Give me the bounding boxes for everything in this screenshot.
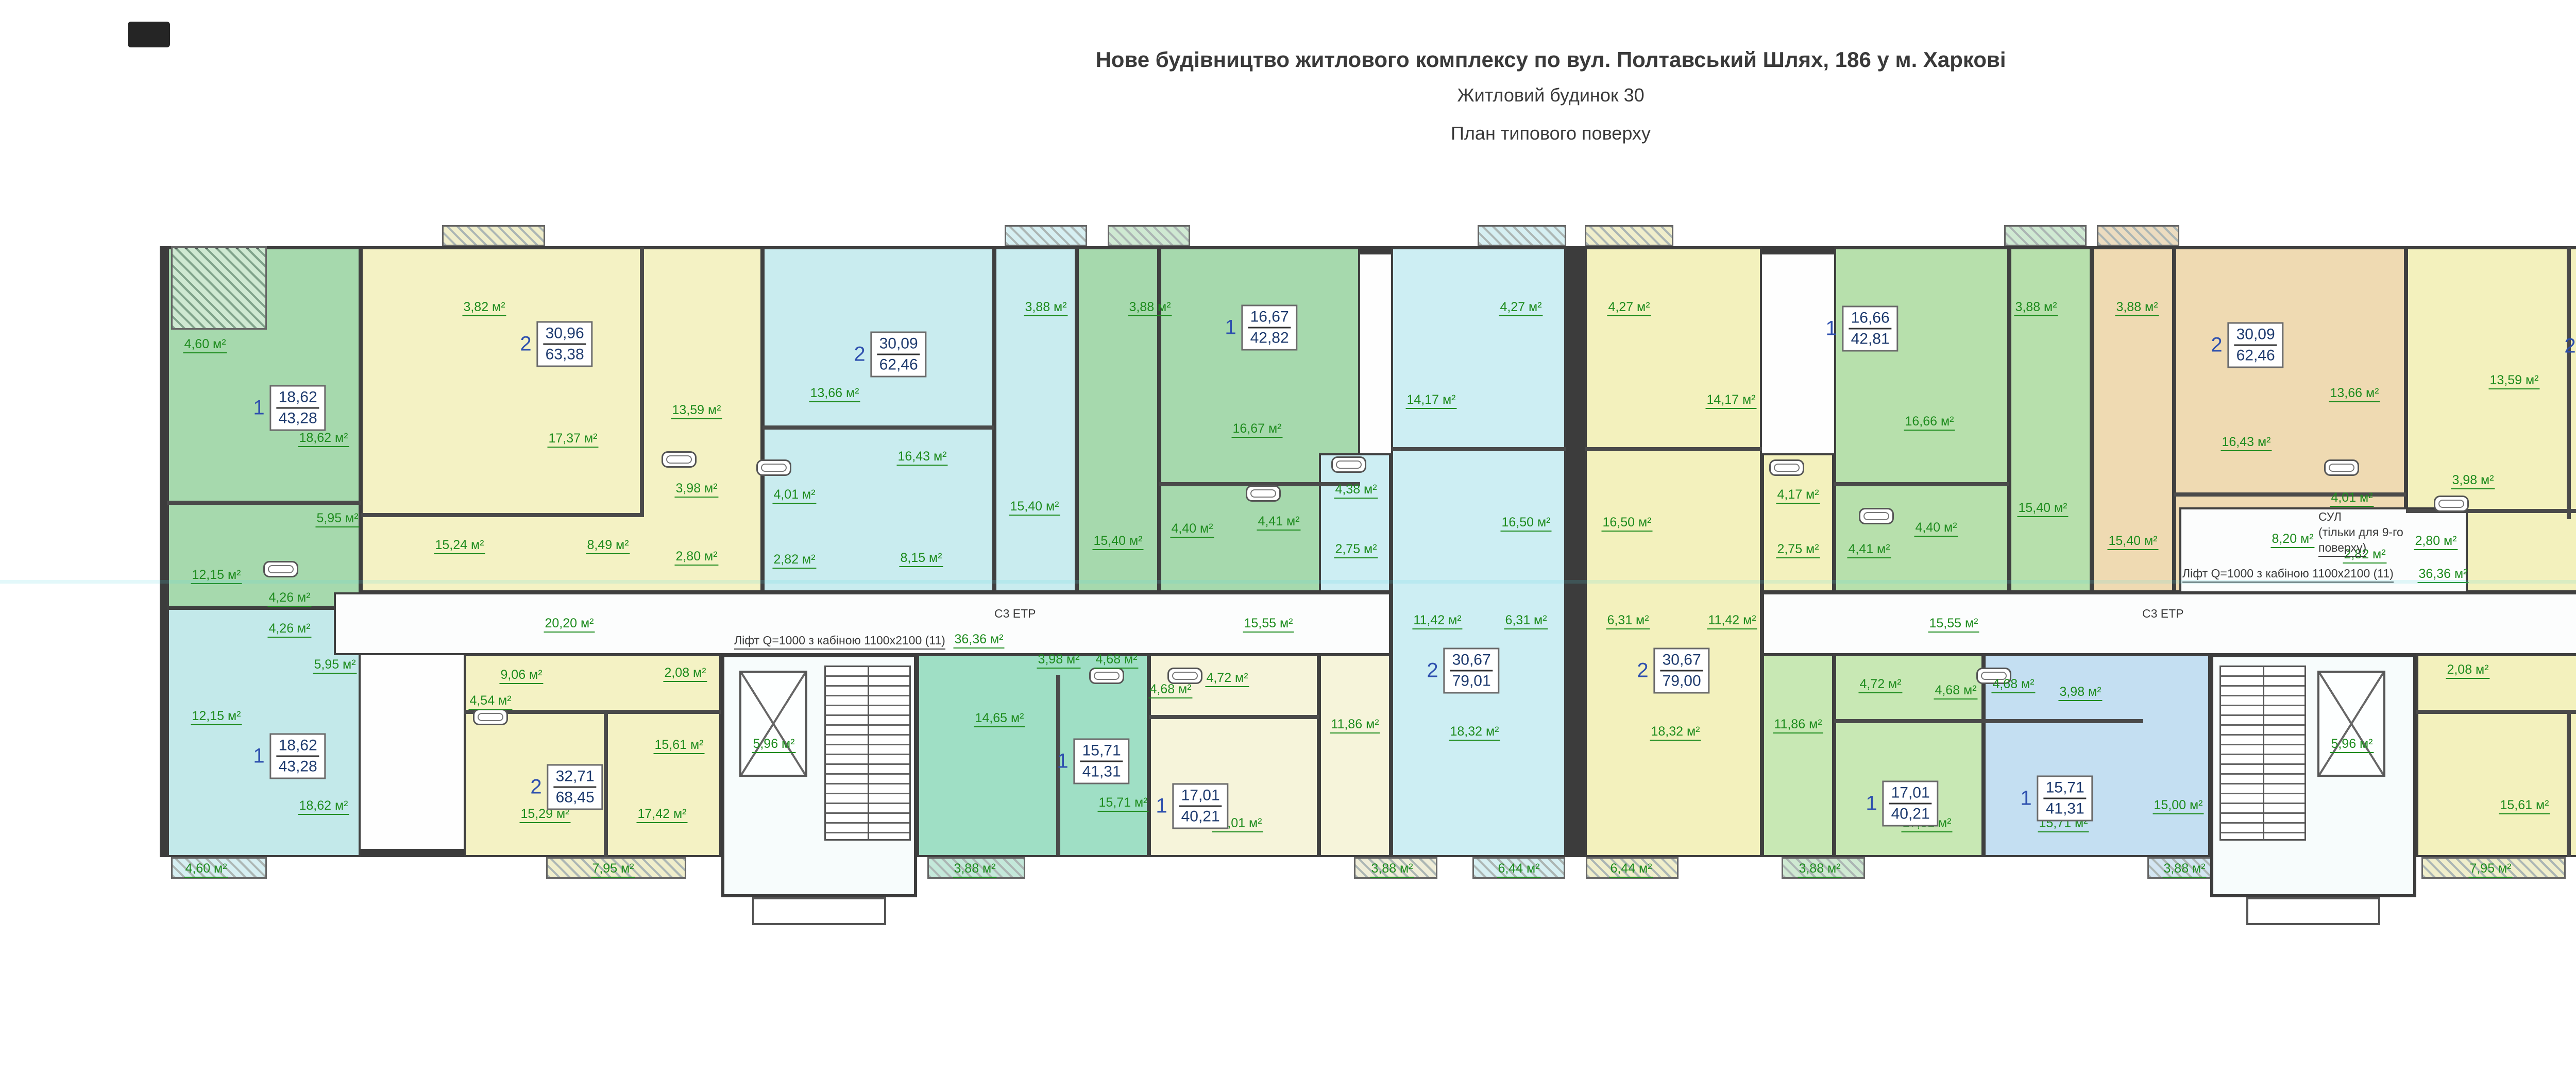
- apartment-R1: [1585, 247, 1762, 857]
- room-area-label-R7: 11,86 м²: [1773, 717, 1823, 733]
- room-area-label-R3: 8,20 м²: [2270, 532, 2314, 548]
- room-area-label-L3: 8,49 м²: [586, 538, 630, 554]
- balcony-area-label: 3,88 м²: [2162, 861, 2206, 878]
- apartment-rooms-count: 1: [253, 745, 264, 768]
- apartment-rooms-count: 1: [253, 397, 264, 420]
- room-area-label-L5: 16,43 м²: [896, 449, 947, 466]
- apartment-total-area: 79,01: [1450, 672, 1493, 690]
- inner-wall-10: [2406, 509, 2576, 513]
- scan-artifact-line: [0, 580, 2576, 584]
- balcony-hatch-3: [1108, 225, 1190, 246]
- balcony-area-label: 4,60 м²: [184, 861, 228, 878]
- bathtub-icon-6: [1859, 508, 1894, 524]
- apartment-areas-box: 18,6243,28: [270, 385, 326, 431]
- room-area-label-L1: 5,95 м²: [315, 511, 359, 527]
- inner-wall-22: [1834, 719, 1984, 723]
- apartment-L7-part1: [1319, 453, 1391, 592]
- room-area-label-T1: 15,71 м²: [1097, 795, 1148, 812]
- apartment-areas-box: 17,0140,21: [1883, 781, 1939, 827]
- room-area-label-R2: 16,66 м²: [1904, 414, 1955, 431]
- apartment-label-B1: 115,7141,31: [2020, 776, 2093, 822]
- annotation-text-5: (тільки для 9-го: [2318, 525, 2403, 539]
- bathtub-icon-1: [662, 451, 697, 468]
- corridor-area-label: 15,55 м²: [1928, 616, 1979, 633]
- room-area-label-R1: 16,50 м²: [1601, 515, 1652, 532]
- apartment-living-area: 30,09: [877, 335, 920, 355]
- apartment-total-area: 42,82: [1248, 329, 1291, 347]
- staircase-icon-0: [824, 666, 911, 841]
- inner-wall-2: [361, 513, 644, 517]
- apartment-rooms-count: 2: [854, 343, 865, 366]
- bathtub-icon-4: [1331, 456, 1366, 473]
- room-area-label-L6: 4,41 м²: [1257, 514, 1300, 531]
- apartment-areas-box: 30,6779,00: [1654, 648, 1710, 694]
- apartment-rooms-count: 2: [2211, 334, 2222, 357]
- apartment-areas-box: 32,7168,45: [547, 764, 603, 810]
- inner-wall-7: [1834, 482, 2009, 486]
- room-area-label-R1: 18,32 м²: [1650, 724, 1701, 741]
- balcony-hatch-5: [1585, 225, 1673, 246]
- balcony-area-label: 3,88 м²: [1370, 861, 1414, 878]
- apartment-living-area: 18,62: [277, 389, 319, 409]
- corridor-area-label: 15,55 м²: [1243, 616, 1294, 633]
- staircase-icon-1: [2219, 666, 2306, 841]
- apartment-label-L2: 118,6243,28: [253, 733, 326, 779]
- balcony-area-label: 3,88 м²: [2115, 300, 2159, 316]
- apartment-total-area: 41,31: [2044, 799, 2087, 818]
- apartment-R2-part1: [2009, 247, 2092, 592]
- balcony-area-label: 3,88 м²: [1024, 300, 1067, 316]
- inner-wall-17: [2416, 710, 2576, 714]
- room-area-label-L3: 15,24 м²: [434, 538, 485, 554]
- room-area-label-L3: 3,98 м²: [674, 481, 718, 498]
- room-area-label-R3: 16,43 м²: [2221, 435, 2272, 451]
- annotation-text-1: С3 ЕТР: [994, 607, 1036, 621]
- apartment-rooms-count: 1: [1057, 750, 1068, 773]
- apartment-rooms-count: 1: [2020, 787, 2031, 810]
- balcony-area-label: 3,88 м²: [953, 861, 996, 878]
- room-area-label-R1: 4,17 м²: [1776, 487, 1820, 504]
- balcony-hatch-2: [1005, 225, 1087, 246]
- room-area-label-L7: 14,17 м²: [1405, 393, 1456, 409]
- apartment-label-T1: 115,7141,31: [1057, 739, 1129, 784]
- apartment-label-L1: 118,6243,28: [253, 385, 326, 431]
- apartment-label-L5: 230,0962,46: [854, 332, 926, 378]
- apartment-living-area: 30,67: [1660, 652, 1703, 672]
- room-area-label-L2: 18,62 м²: [298, 798, 349, 815]
- inner-wall-6: [1585, 447, 1762, 451]
- room-area-label-L4: 9,06 м²: [499, 668, 543, 684]
- apartment-total-area: 40,21: [1179, 807, 1222, 826]
- apartment-L5: [762, 247, 994, 592]
- room-area-label-L2: 4,26 м²: [267, 621, 311, 638]
- apartment-L3: [361, 247, 762, 592]
- apartment-label-L7: 230,6779,01: [1427, 648, 1499, 694]
- room-area-label-C1: 11,86 м²: [1330, 717, 1380, 733]
- bathtub-icon-2: [756, 459, 791, 476]
- room-area-label-L3: 3,82 м²: [462, 300, 506, 316]
- room-area-label-L6: 15,40 м²: [1092, 534, 1143, 550]
- bathtub-icon-0: [263, 561, 298, 577]
- apartment-living-area: 16,67: [1248, 309, 1291, 329]
- apartment-rooms-count: 2: [520, 333, 531, 356]
- balcony-area-label: 6,44 м²: [1609, 861, 1653, 878]
- apartment-living-area: 30,67: [1450, 652, 1493, 672]
- inner-wall-5: [1391, 447, 1566, 451]
- building-center-wall: [1566, 246, 1585, 857]
- room-area-label-L5: 8,15 м²: [899, 551, 943, 567]
- inner-wall-9: [2567, 247, 2571, 519]
- balcony-hatch-4: [1478, 225, 1566, 246]
- apartment-label-L4: 232,7168,45: [530, 764, 603, 810]
- room-area-label-R4: 3,98 м²: [2451, 473, 2495, 489]
- room-area-label-L5: 4,01 м²: [772, 487, 816, 504]
- room-area-label-R6: 15,61 м²: [2499, 798, 2550, 814]
- inner-wall-16: [604, 714, 608, 857]
- apartment-total-area: 43,28: [277, 757, 319, 776]
- bathtub-icon-5: [1769, 459, 1804, 476]
- apartment-rooms-count: 1: [1866, 792, 1877, 815]
- balcony-hatch-7: [2097, 225, 2179, 246]
- apartment-L5-part1: [994, 247, 1077, 592]
- apartment-areas-box: 30,0962,46: [2228, 322, 2284, 368]
- balcony-area-label: 4,27 м²: [1607, 300, 1651, 316]
- apartment-label-R2: 116,6642,81: [1825, 306, 1898, 352]
- apartment-label-R3: 230,0962,46: [2211, 322, 2283, 368]
- room-area-label-L7: 11,42 м²: [1412, 613, 1462, 629]
- room-area-label-C1: 4,68 м²: [1148, 682, 1192, 698]
- corridor-1: [1762, 592, 2576, 655]
- inner-wall-21: [1984, 719, 2143, 723]
- room-area-label-B1: 3,98 м²: [2058, 685, 2102, 701]
- room-area-label-R2: 4,40 м²: [1914, 520, 1958, 537]
- apartment-label-L3: 230,9663,38: [520, 321, 592, 367]
- apartment-rooms-count: 2: [1427, 659, 1438, 682]
- apartment-C1-part1: [1319, 654, 1391, 857]
- apartment-areas-box: 17,0140,21: [1173, 783, 1229, 829]
- room-area-label-L3: 13,59 м²: [671, 403, 722, 419]
- annotation-text-6: поверху): [2318, 541, 2366, 557]
- apartment-areas-box: 15,7141,31: [1074, 739, 1130, 784]
- room-area-label-L7: 6,31 м²: [1504, 613, 1548, 629]
- annotation-text-0: Ліфт Q=1000 з кабіною 1100х2100 (11): [734, 634, 945, 650]
- balcony-area-label: 4,27 м²: [1499, 300, 1543, 316]
- scan-artifact-box: [128, 22, 170, 47]
- apartment-living-area: 15,71: [2044, 779, 2087, 799]
- apartment-label-R4: 230,7063,19: [2564, 323, 2576, 369]
- apartment-living-area: 15,71: [1080, 742, 1123, 762]
- apartment-label-L6: 116,6742,82: [1225, 305, 1297, 351]
- apartment-rooms-count: 2: [2564, 335, 2575, 358]
- room-area-label-L2: 12,15 м²: [191, 709, 242, 725]
- apartment-areas-box: 16,6642,81: [1842, 306, 1899, 352]
- room-area-label-L1: 18,62 м²: [298, 431, 349, 447]
- apartment-total-area: 63,38: [544, 345, 586, 364]
- apartment-living-area: 17,01: [1179, 787, 1222, 807]
- room-area-label-T1: 14,65 м²: [974, 711, 1025, 727]
- room-area-label-L2: 5,95 м²: [313, 657, 357, 674]
- apartment-living-area: 30,09: [2234, 326, 2277, 346]
- annotation-text-4: СУЛ: [2318, 510, 2342, 524]
- bathtub-icon-10: [473, 709, 508, 725]
- bathtub-icon-3: [1246, 485, 1281, 502]
- apartment-L7: [1391, 247, 1566, 857]
- room-area-label-R4: 2,80 м²: [2414, 534, 2458, 550]
- apartment-rooms-count: 2: [530, 776, 541, 799]
- room-area-label-R7: 4,72 м²: [1858, 677, 1902, 693]
- inner-wall-18: [2567, 714, 2571, 857]
- apartment-rooms-count: 2: [1637, 659, 1648, 682]
- room-area-label-R4: 13,59 м²: [2488, 373, 2539, 389]
- room-area-label-R3: 15,40 м²: [2107, 534, 2158, 550]
- balcony-hatch-1: [442, 225, 545, 246]
- inner-wall-3: [762, 425, 994, 430]
- room-area-label-R1: 14,17 м²: [1705, 393, 1756, 409]
- room-area-label-L5: 15,40 м²: [1009, 499, 1060, 516]
- room-area-label-L5: 2,82 м²: [772, 552, 816, 569]
- apartment-living-area: 17,01: [1889, 784, 1932, 805]
- room-area-label-R2: 4,41 м²: [1847, 542, 1891, 558]
- apartment-living-area: 18,62: [277, 737, 319, 757]
- apartment-living-area: 30,96: [544, 325, 586, 345]
- page-subtitle-plan: План типового поверху: [1451, 123, 1651, 144]
- apartment-rooms-count: 1: [1825, 317, 1837, 340]
- apartment-L4: [464, 654, 721, 857]
- bathtub-icon-8: [2434, 496, 2469, 512]
- apartment-R7: [1762, 654, 1834, 857]
- apartment-total-area: 62,46: [877, 355, 920, 374]
- apartment-rooms-count: 1: [1156, 795, 1167, 818]
- apartment-label-C1: 117,0140,21: [1156, 783, 1228, 829]
- room-area-label-L7: 2,75 м²: [1334, 542, 1378, 558]
- corridor-area-label: 20,20 м²: [544, 616, 595, 633]
- apartment-L2: [167, 608, 361, 857]
- page-subtitle-building: Житловий будинок 30: [1457, 84, 1644, 106]
- room-area-label-T1: 3,98 м²: [1037, 652, 1080, 669]
- apartment-living-area: 32,71: [554, 768, 597, 788]
- room-area-label-B1: 15,00 м²: [2153, 798, 2204, 814]
- apartment-total-area: 40,21: [1889, 805, 1932, 823]
- room-area-label-L7: 18,32 м²: [1449, 724, 1500, 741]
- balcony-area-label: 7,95 м²: [2468, 861, 2512, 878]
- apartment-total-area: 43,28: [277, 409, 319, 428]
- room-area-label-L4: 4,54 м²: [468, 693, 512, 710]
- room-area-label-L7: 16,50 м²: [1500, 515, 1551, 532]
- floor-plan-page: Нове будівництво житлового комплексу по …: [0, 0, 2576, 1075]
- apartment-label-R1: 230,6779,00: [1637, 648, 1709, 694]
- inner-wall-20: [1149, 715, 1319, 719]
- room-area-label-R6: 2,08 м²: [2446, 662, 2489, 679]
- apartment-total-area: 42,81: [1849, 330, 1892, 348]
- apartment-areas-box: 15,7141,31: [2037, 776, 2093, 822]
- apartment-areas-box: 16,6742,82: [1242, 305, 1298, 351]
- apartment-areas-box: 30,0962,46: [871, 332, 927, 378]
- room-area-label-L1: 4,26 м²: [267, 590, 311, 607]
- page-title: Нове будівництво житлового комплексу по …: [1095, 47, 2006, 72]
- apartment-rooms-count: 1: [1225, 316, 1236, 339]
- apartment-areas-box: 30,6779,01: [1444, 648, 1500, 694]
- room-area-label-R1: 2,75 м²: [1776, 542, 1820, 558]
- room-area-label-L3: 2,80 м²: [674, 549, 718, 566]
- room-area-label-R7: 4,68 м²: [1934, 683, 1977, 699]
- room-area-label-L4: 17,42 м²: [636, 807, 687, 823]
- apartment-total-area: 68,45: [554, 788, 597, 807]
- balcony-area-label: 7,95 м²: [591, 861, 635, 878]
- balcony-area-label: 3,88 м²: [2014, 300, 2058, 316]
- room-area-label-L7: 4,38 м²: [1334, 482, 1378, 499]
- corridor-area-label: 36,36 м²: [953, 632, 1004, 649]
- elevator-shaft-icon-0: [739, 671, 807, 777]
- room-area-label-R3: 13,66 м²: [2329, 386, 2380, 402]
- room-area-label-T1: 4,68 м²: [1094, 652, 1138, 669]
- entrance-porch-0: [752, 897, 886, 925]
- room-area-label-L4: 15,61 м²: [653, 738, 704, 754]
- balcony-area-label: 3,88 м²: [1798, 861, 1841, 878]
- bathtub-icon-7: [2324, 459, 2359, 476]
- room-area-label-L6: 16,67 м²: [1231, 421, 1282, 438]
- room-area-label-L6: 4,40 м²: [1170, 521, 1214, 538]
- apartment-R6: [2416, 654, 2576, 857]
- annotation-text-3: С3 ЕТР: [2142, 607, 2184, 621]
- apartment-areas-box: 18,6243,28: [270, 733, 326, 779]
- elevator-area-label: 5,96 м²: [752, 737, 795, 753]
- room-area-label-L5: 13,66 м²: [809, 386, 860, 402]
- room-area-label-B1: 4,68 м²: [1991, 677, 2035, 693]
- room-area-label-R2: 15,40 м²: [2017, 501, 2068, 517]
- room-area-label-L4: 2,08 м²: [663, 666, 707, 682]
- balcony-area-label: 3,88 м²: [1128, 300, 1172, 316]
- balcony-area-label: 4,60 м²: [183, 337, 227, 353]
- apartment-living-area: 16,66: [1849, 310, 1892, 330]
- apartment-total-area: 79,00: [1660, 672, 1703, 690]
- apartment-total-area: 62,46: [2234, 346, 2277, 365]
- room-area-label-R3: 4,01 м²: [2330, 490, 2374, 507]
- elevator-shaft-icon-1: [2317, 671, 2385, 777]
- balcony-area-label: 6,44 м²: [1497, 861, 1540, 878]
- balcony-hatch-6: [2004, 225, 2087, 246]
- apartment-total-area: 41,31: [1080, 762, 1123, 781]
- apartment-areas-box: 30,9663,38: [537, 321, 593, 367]
- room-area-label-R1: 11,42 м²: [1707, 613, 1757, 629]
- balcony-hatch-0: [171, 246, 267, 330]
- elevator-area-label: 5,96 м²: [2330, 737, 2374, 753]
- room-area-label-C1: 4,72 м²: [1205, 671, 1249, 687]
- entrance-porch-1: [2246, 897, 2380, 925]
- bathtub-icon-11: [1089, 668, 1124, 684]
- room-area-label-R1: 6,31 м²: [1606, 613, 1650, 629]
- inner-wall-0: [167, 501, 361, 505]
- inner-wall-1: [640, 247, 644, 517]
- room-area-label-L3: 17,37 м²: [547, 431, 598, 448]
- apartment-label-R7: 117,0140,21: [1866, 781, 1938, 827]
